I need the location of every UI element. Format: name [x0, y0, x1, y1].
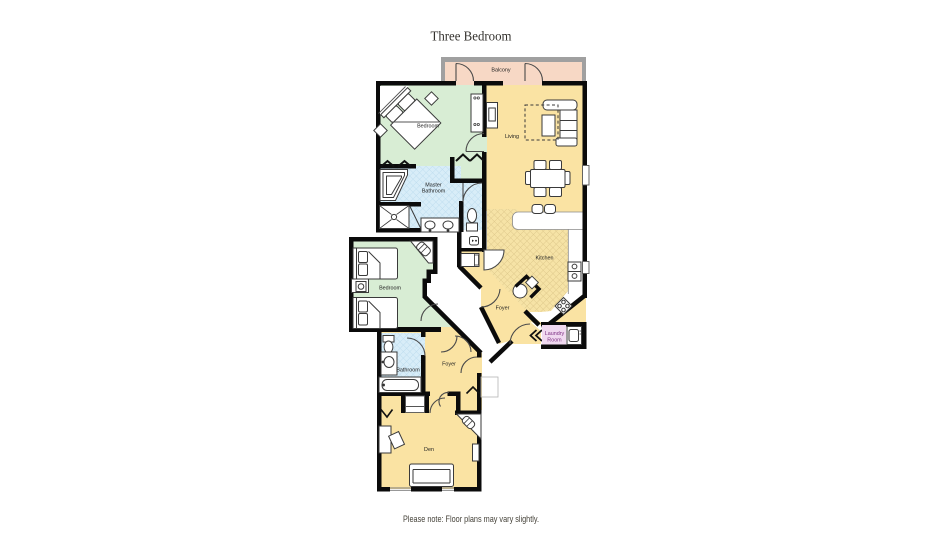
svg-text:Den: Den — [424, 447, 434, 453]
svg-text:Bedroom: Bedroom — [379, 286, 401, 292]
svg-text:Bedroom: Bedroom — [417, 124, 439, 130]
svg-text:Please note: Floor plans may v: Please note: Floor plans may vary slight… — [403, 514, 539, 525]
svg-text:Laundry: Laundry — [545, 331, 565, 337]
svg-text:Kitchen: Kitchen — [536, 256, 554, 262]
svg-text:Living: Living — [505, 134, 519, 140]
svg-text:Balcony: Balcony — [491, 68, 510, 74]
svg-text:Bathroom: Bathroom — [422, 189, 446, 195]
svg-text:Three Bedroom: Three Bedroom — [431, 30, 512, 45]
svg-text:Bathroom: Bathroom — [396, 368, 420, 374]
svg-text:Foyer: Foyer — [496, 306, 510, 312]
svg-text:Foyer: Foyer — [442, 362, 456, 368]
svg-text:Room: Room — [547, 338, 562, 344]
